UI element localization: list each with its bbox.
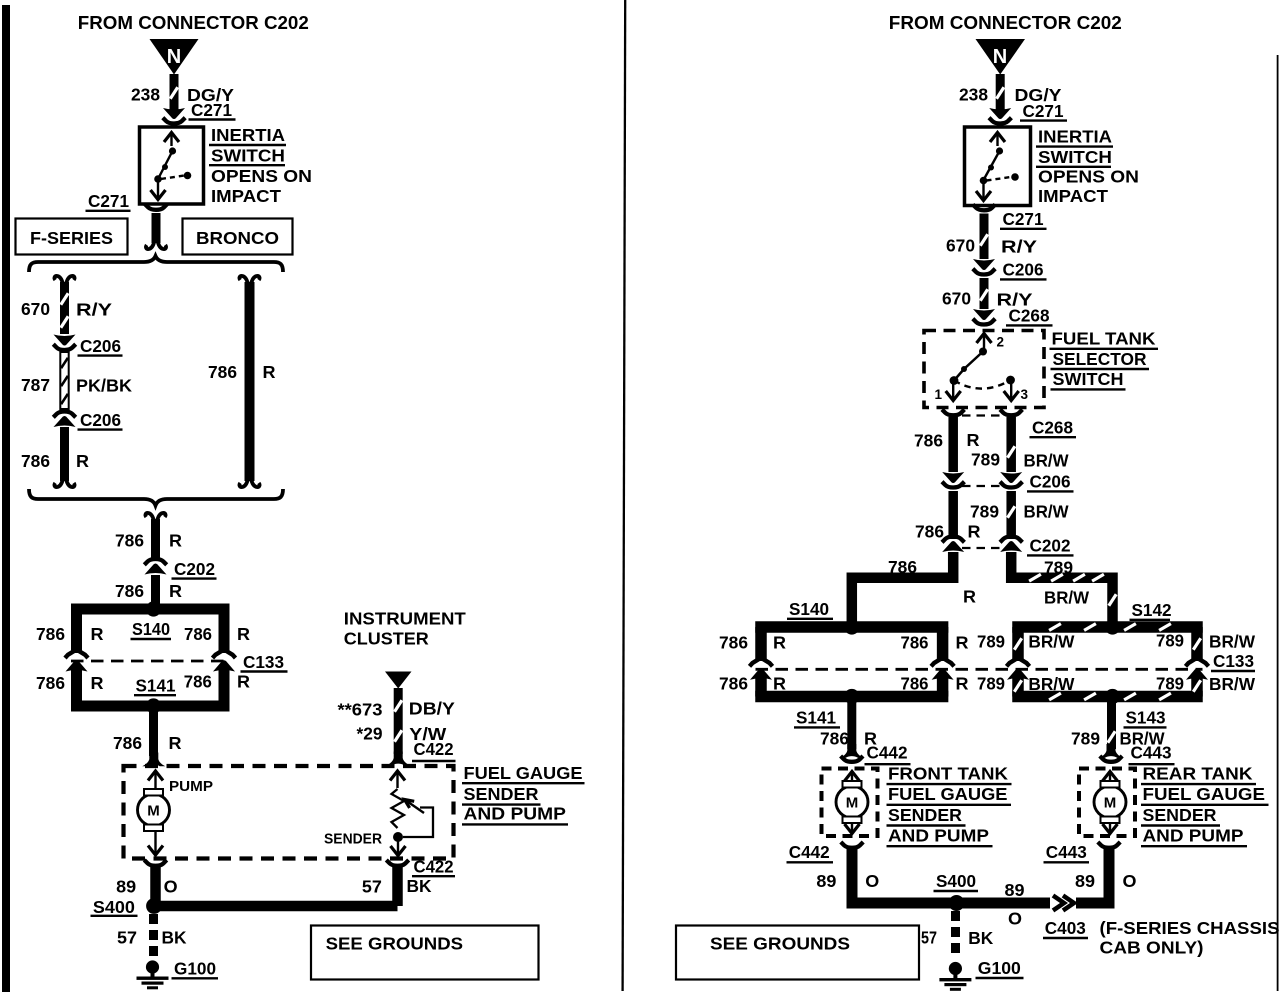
svg-text:(F-SERIES CHASSIS: (F-SERIES CHASSIS bbox=[1100, 918, 1280, 938]
svg-text:C206: C206 bbox=[1030, 472, 1071, 492]
svg-text:S140: S140 bbox=[132, 619, 170, 639]
svg-text:R: R bbox=[91, 624, 104, 644]
svg-text:786: 786 bbox=[21, 451, 50, 471]
svg-text:BK: BK bbox=[162, 928, 187, 948]
svg-text:S400: S400 bbox=[93, 897, 135, 917]
svg-text:INSTRUMENT: INSTRUMENT bbox=[344, 608, 466, 628]
svg-text:3: 3 bbox=[1021, 387, 1029, 402]
svg-text:FROM CONNECTOR C202: FROM CONNECTOR C202 bbox=[889, 13, 1122, 33]
svg-text:FUEL TANK: FUEL TANK bbox=[1052, 329, 1156, 349]
svg-text:789: 789 bbox=[1156, 631, 1184, 651]
svg-text:89: 89 bbox=[1075, 871, 1095, 891]
svg-text:O: O bbox=[164, 877, 178, 897]
svg-text:R: R bbox=[169, 581, 182, 601]
svg-text:1: 1 bbox=[935, 387, 943, 402]
svg-text:786: 786 bbox=[36, 673, 65, 693]
svg-text:786: 786 bbox=[208, 362, 237, 382]
svg-text:CAB ONLY): CAB ONLY) bbox=[1100, 938, 1204, 958]
svg-text:787: 787 bbox=[21, 375, 50, 395]
svg-text:BK: BK bbox=[968, 928, 993, 948]
svg-text:R: R bbox=[773, 674, 786, 694]
svg-text:G100: G100 bbox=[978, 958, 1021, 978]
svg-text:238: 238 bbox=[131, 85, 160, 105]
svg-text:C271: C271 bbox=[88, 191, 129, 211]
svg-text:789: 789 bbox=[977, 674, 1005, 694]
svg-text:FUEL GAUGE: FUEL GAUGE bbox=[1143, 784, 1266, 804]
svg-text:INERTIA: INERTIA bbox=[1038, 127, 1112, 147]
svg-text:SELECTOR: SELECTOR bbox=[1053, 349, 1147, 369]
svg-text:IMPACT: IMPACT bbox=[1038, 186, 1108, 206]
svg-text:SWITCH: SWITCH bbox=[1038, 147, 1112, 167]
svg-text:SWITCH: SWITCH bbox=[211, 146, 285, 166]
svg-text:FUEL GAUGE: FUEL GAUGE bbox=[464, 763, 583, 783]
svg-text:BR/W: BR/W bbox=[1028, 632, 1074, 652]
svg-text:R/Y: R/Y bbox=[1001, 237, 1037, 257]
svg-text:S141: S141 bbox=[796, 708, 836, 728]
svg-text:786: 786 bbox=[901, 633, 929, 653]
svg-text:SEE GROUNDS: SEE GROUNDS bbox=[326, 934, 464, 954]
svg-text:C133: C133 bbox=[1213, 651, 1254, 671]
svg-text:786: 786 bbox=[914, 431, 943, 451]
svg-text:C422: C422 bbox=[414, 739, 454, 759]
svg-text:AND PUMP: AND PUMP bbox=[888, 826, 989, 846]
svg-text:S400: S400 bbox=[936, 871, 976, 891]
svg-text:89: 89 bbox=[816, 871, 836, 891]
svg-text:R: R bbox=[237, 624, 250, 644]
svg-text:N: N bbox=[167, 46, 181, 68]
svg-text:SENDER: SENDER bbox=[1143, 805, 1217, 825]
svg-text:786: 786 bbox=[901, 674, 929, 694]
svg-text:SENDER: SENDER bbox=[888, 805, 962, 825]
svg-text:789: 789 bbox=[1044, 558, 1073, 578]
svg-text:BR/W: BR/W bbox=[1028, 674, 1074, 694]
svg-text:786: 786 bbox=[184, 672, 212, 692]
svg-text:C133: C133 bbox=[243, 652, 284, 672]
svg-text:786: 786 bbox=[719, 674, 748, 694]
svg-text:SENDER: SENDER bbox=[324, 832, 382, 848]
svg-text:2: 2 bbox=[997, 335, 1005, 350]
svg-text:AND PUMP: AND PUMP bbox=[464, 803, 567, 823]
svg-text:INERTIA: INERTIA bbox=[211, 125, 285, 145]
svg-text:786: 786 bbox=[915, 522, 944, 542]
svg-text:BR/W: BR/W bbox=[1024, 502, 1069, 522]
svg-text:C206: C206 bbox=[80, 410, 121, 430]
svg-text:786: 786 bbox=[719, 633, 748, 653]
svg-text:SENDER: SENDER bbox=[464, 784, 539, 804]
svg-text:786: 786 bbox=[113, 733, 142, 753]
svg-text:238: 238 bbox=[959, 85, 988, 105]
svg-text:789: 789 bbox=[1156, 674, 1184, 694]
svg-text:R/Y: R/Y bbox=[76, 300, 112, 320]
svg-text:FRONT TANK: FRONT TANK bbox=[888, 764, 1008, 784]
svg-text:R: R bbox=[773, 633, 786, 653]
svg-text:OPENS ON: OPENS ON bbox=[211, 166, 312, 186]
svg-text:786: 786 bbox=[888, 557, 917, 577]
svg-text:C403: C403 bbox=[1045, 918, 1086, 938]
svg-text:S143: S143 bbox=[1126, 708, 1166, 728]
svg-text:57: 57 bbox=[921, 928, 937, 948]
svg-text:C422: C422 bbox=[414, 857, 454, 877]
svg-text:BRONCO: BRONCO bbox=[196, 228, 279, 248]
svg-text:C443: C443 bbox=[1046, 842, 1087, 862]
svg-text:670: 670 bbox=[946, 236, 975, 256]
svg-text:O: O bbox=[1008, 909, 1022, 929]
svg-text:O: O bbox=[1123, 871, 1137, 891]
svg-text:789: 789 bbox=[971, 450, 1000, 470]
svg-text:786: 786 bbox=[184, 624, 212, 644]
svg-text:C202: C202 bbox=[174, 559, 215, 579]
svg-text:R: R bbox=[968, 522, 981, 542]
svg-text:DB/Y: DB/Y bbox=[409, 699, 455, 719]
svg-text:789: 789 bbox=[1071, 729, 1100, 749]
svg-text:C271: C271 bbox=[1003, 209, 1044, 229]
svg-text:670: 670 bbox=[21, 299, 50, 319]
svg-text:N: N bbox=[993, 46, 1007, 68]
svg-text:S141: S141 bbox=[136, 676, 176, 696]
svg-text:BR/W: BR/W bbox=[1209, 632, 1255, 652]
svg-text:789: 789 bbox=[970, 502, 999, 522]
svg-text:57: 57 bbox=[117, 928, 137, 948]
svg-text:PUMP: PUMP bbox=[169, 779, 213, 795]
svg-text:R: R bbox=[956, 633, 969, 653]
svg-text:R: R bbox=[169, 531, 182, 551]
svg-text:R: R bbox=[956, 674, 969, 694]
svg-text:R: R bbox=[963, 587, 976, 607]
svg-text:C206: C206 bbox=[1003, 260, 1044, 280]
svg-text:C271: C271 bbox=[191, 100, 232, 120]
svg-text:C206: C206 bbox=[80, 336, 121, 356]
svg-text:R: R bbox=[263, 362, 276, 382]
svg-text:FUEL GAUGE: FUEL GAUGE bbox=[888, 784, 1008, 804]
svg-text:C442: C442 bbox=[867, 743, 908, 763]
svg-text:G100: G100 bbox=[174, 959, 216, 979]
svg-text:F-SERIES: F-SERIES bbox=[30, 228, 113, 248]
svg-text:SWITCH: SWITCH bbox=[1053, 369, 1124, 389]
svg-text:S142: S142 bbox=[1132, 600, 1172, 620]
svg-text:786: 786 bbox=[820, 729, 849, 749]
svg-text:C271: C271 bbox=[1023, 101, 1064, 121]
svg-text:C268: C268 bbox=[1009, 306, 1050, 326]
svg-text:789: 789 bbox=[977, 632, 1005, 652]
svg-text:89: 89 bbox=[1005, 880, 1025, 900]
svg-text:IMPACT: IMPACT bbox=[211, 186, 281, 206]
svg-text:**673: **673 bbox=[338, 699, 383, 719]
svg-text:C202: C202 bbox=[1030, 536, 1071, 556]
svg-text:PK/BK: PK/BK bbox=[76, 376, 132, 396]
svg-text:*29: *29 bbox=[357, 724, 383, 744]
svg-text:57: 57 bbox=[362, 877, 382, 897]
svg-text:R: R bbox=[237, 672, 250, 692]
svg-text:C443: C443 bbox=[1131, 743, 1172, 763]
svg-text:BR/W: BR/W bbox=[1209, 674, 1255, 694]
svg-text:S140: S140 bbox=[789, 599, 829, 619]
svg-text:786: 786 bbox=[115, 581, 144, 601]
svg-text:AND PUMP: AND PUMP bbox=[1143, 826, 1244, 846]
svg-text:O: O bbox=[865, 871, 879, 891]
svg-text:R: R bbox=[967, 430, 980, 450]
svg-text:C268: C268 bbox=[1032, 418, 1073, 438]
svg-text:BR/W: BR/W bbox=[1044, 588, 1089, 608]
svg-text:C442: C442 bbox=[789, 842, 830, 862]
svg-text:89: 89 bbox=[116, 877, 136, 897]
svg-text:R: R bbox=[169, 733, 182, 753]
svg-text:R: R bbox=[76, 451, 89, 471]
svg-text:786: 786 bbox=[115, 531, 144, 551]
svg-text:786: 786 bbox=[36, 624, 65, 644]
svg-text:OPENS ON: OPENS ON bbox=[1038, 167, 1139, 187]
svg-text:REAR TANK: REAR TANK bbox=[1143, 764, 1253, 784]
svg-text:BK: BK bbox=[407, 876, 432, 896]
svg-text:R: R bbox=[91, 673, 104, 693]
svg-text:FROM CONNECTOR C202: FROM CONNECTOR C202 bbox=[78, 13, 309, 33]
svg-text:670: 670 bbox=[942, 289, 971, 309]
svg-text:BR/W: BR/W bbox=[1024, 451, 1069, 471]
svg-text:CLUSTER: CLUSTER bbox=[344, 628, 429, 648]
svg-text:SEE GROUNDS: SEE GROUNDS bbox=[710, 934, 850, 954]
